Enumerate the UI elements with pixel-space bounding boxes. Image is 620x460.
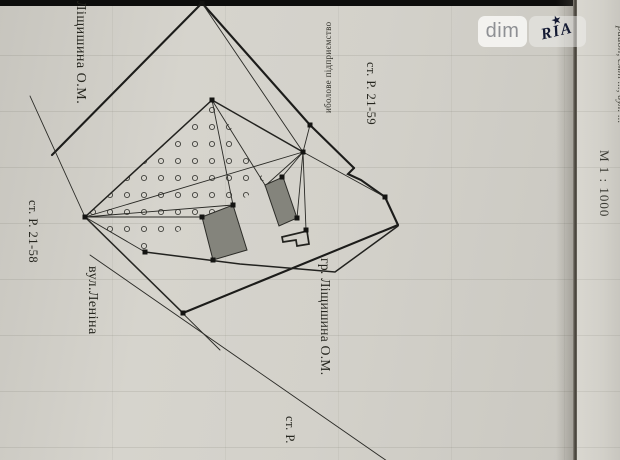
dim-ria-watermark: dim ★ RIA bbox=[478, 16, 586, 47]
label-station-21-59: ст. Р. 21-59 bbox=[363, 62, 378, 125]
label-street-lenina: вул.Леніна bbox=[84, 266, 100, 335]
label-neighbor-owner: гр. Ліщишина О.М. bbox=[317, 258, 333, 375]
watermark-ria-badge: ★ RIA bbox=[529, 16, 586, 47]
boundary-zigzag-mark bbox=[348, 168, 385, 197]
label-owner-top: Ліщишина О.М. bbox=[72, 1, 88, 104]
building-l-shaped bbox=[282, 231, 309, 246]
label-station-bottom: ст. Р. bbox=[282, 416, 297, 444]
building-hatched-small bbox=[265, 177, 297, 226]
watermark-ria-text: RIA bbox=[540, 19, 575, 44]
label-station-21-58: ст. Р. 21-58 bbox=[25, 200, 40, 263]
label-neighbor-enterprise: иболове підприємство bbox=[323, 22, 333, 113]
label-address-line: район, смт ..., вул. ... bbox=[615, 26, 620, 123]
watermark-dim-badge: dim bbox=[478, 16, 527, 47]
survey-plan-drawing bbox=[0, 0, 620, 460]
label-map-scale: М 1 : 1000 bbox=[596, 150, 612, 217]
scanned-land-plan-photo: Ліщишина О.М. иболове підприємство ст. Р… bbox=[0, 0, 620, 460]
watermark-dim-text: dim bbox=[486, 20, 520, 43]
